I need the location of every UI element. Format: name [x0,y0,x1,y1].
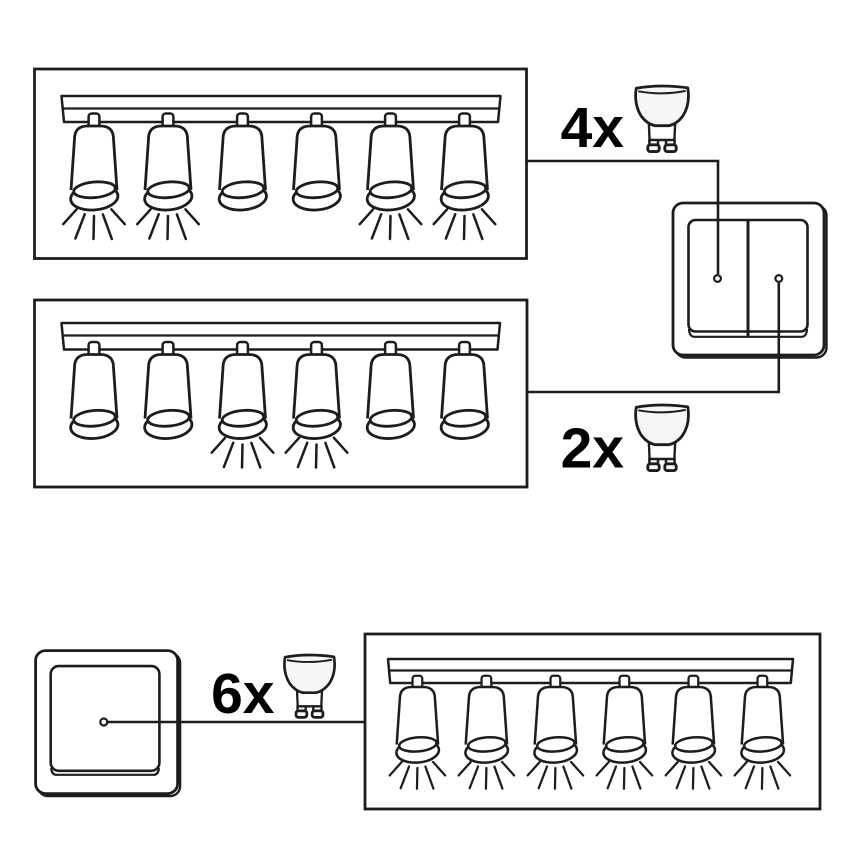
svg-text:2x: 2x [561,417,625,481]
svg-text:4x: 4x [561,96,625,160]
svg-text:6x: 6x [211,662,275,726]
